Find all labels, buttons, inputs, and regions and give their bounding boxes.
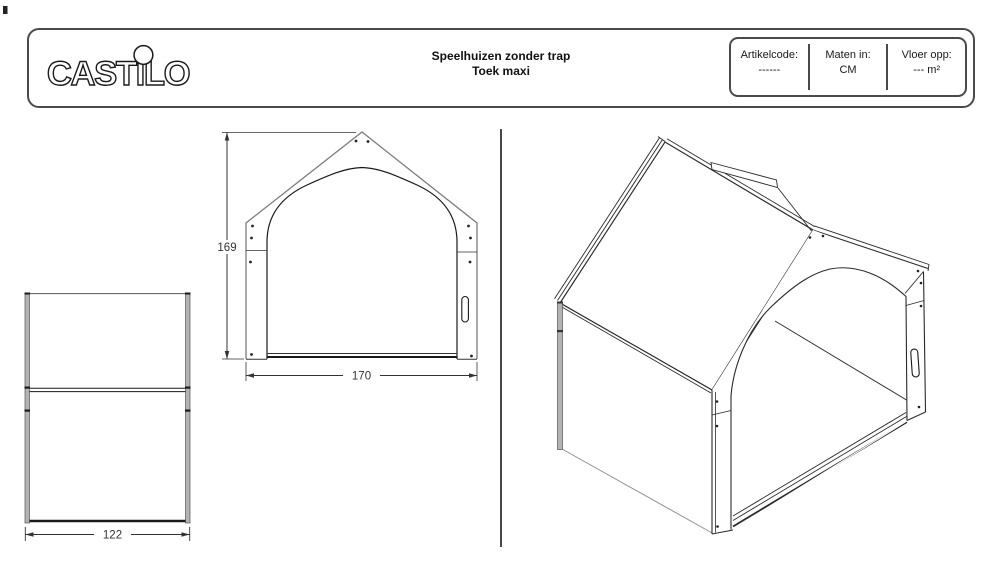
info-artikelcode-value: ------	[731, 63, 808, 78]
side-view-width-dimension: 122	[25, 527, 189, 542]
front-panel-face	[246, 132, 477, 359]
corner-print-mark	[3, 6, 8, 14]
front-view: 169 170	[217, 132, 477, 383]
side-view-right-panel-edge	[186, 293, 191, 523]
front-height-value: 169	[217, 242, 236, 254]
front-width-value: 170	[352, 371, 371, 383]
interior-backwall-line	[775, 321, 907, 400]
info-vloer-label: Vloer opp:	[888, 48, 965, 63]
info-vloer: Vloer opp: --- m²	[888, 39, 965, 95]
back-corner-panel-edge	[558, 302, 563, 450]
front-handle-slot	[462, 297, 469, 323]
iso-threshold	[733, 413, 907, 527]
info-maten: Maten in: CM	[810, 39, 887, 95]
title-block-header: CASTILO Speelhuizen zonder trap Toek max…	[27, 28, 975, 108]
info-artikelcode: Artikelcode: ------	[731, 39, 808, 95]
isometric-view	[555, 137, 930, 535]
front-width-dimension: 170	[246, 362, 477, 383]
side-view-left-panel-edge	[25, 293, 30, 523]
info-artikelcode-label: Artikelcode:	[731, 48, 808, 63]
side-view-width-value: 122	[103, 530, 122, 542]
info-maten-value: CM	[810, 63, 887, 78]
side-view-fixing-marks	[25, 293, 191, 412]
info-vloer-value: --- m²	[888, 63, 965, 78]
info-maten-label: Maten in:	[810, 48, 887, 63]
side-view: 122	[25, 293, 191, 542]
iso-handle-slot	[911, 349, 920, 377]
info-box: Artikelcode: ------ Maten in: CM Vloer o…	[729, 37, 967, 97]
front-screw-dots	[249, 140, 473, 358]
front-arch-opening	[267, 168, 457, 360]
